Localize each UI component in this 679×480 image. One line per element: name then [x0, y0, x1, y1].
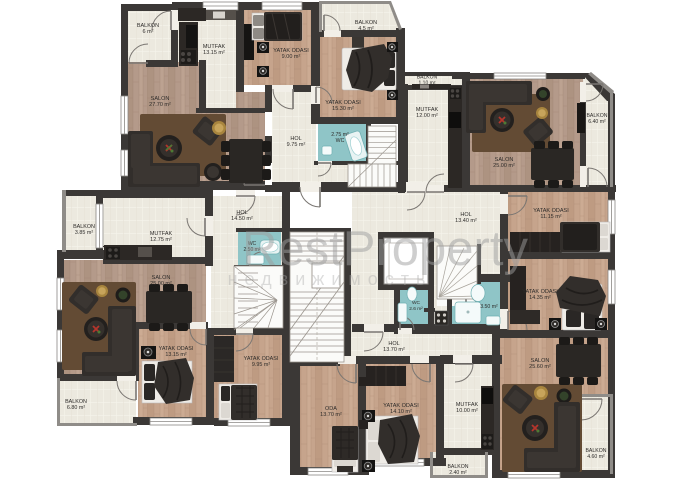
svg-text:14.10 m²: 14.10 m² [390, 409, 412, 415]
svg-text:3.50 m²: 3.50 m² [480, 304, 498, 310]
svg-text:BALKON: BALKON [355, 20, 377, 26]
svg-text:BALKON: BALKON [417, 75, 438, 81]
svg-text:4.60 m²: 4.60 m² [587, 454, 605, 460]
svg-text:27.70 m²: 27.70 m² [149, 102, 171, 108]
svg-text:13.70 m²: 13.70 m² [383, 347, 405, 353]
svg-text:6.80 m²: 6.80 m² [67, 405, 85, 411]
svg-text:BALKON: BALKON [586, 113, 607, 119]
svg-text:RestProperty: RestProperty [242, 222, 528, 276]
svg-text:BALKON: BALKON [73, 224, 95, 230]
svg-text:SALON: SALON [151, 96, 170, 102]
svg-text:BALKON: BALKON [137, 23, 159, 29]
svg-text:SALON: SALON [531, 358, 550, 364]
svg-text:14.35 m²: 14.35 m² [529, 295, 551, 301]
svg-text:6 m²: 6 m² [143, 29, 154, 35]
svg-text:12.00 m²: 12.00 m² [416, 113, 438, 119]
svg-text:10.00 m²: 10.00 m² [456, 408, 478, 414]
svg-text:13.15 m²: 13.15 m² [203, 50, 225, 56]
svg-text:SALON: SALON [152, 275, 171, 281]
svg-text:3.85 m²: 3.85 m² [75, 230, 93, 236]
svg-text:YATAK ODASI: YATAK ODASI [325, 100, 361, 106]
svg-text:HOL: HOL [388, 341, 399, 347]
svg-text:25.00 m²: 25.00 m² [493, 163, 515, 169]
svg-text:9.00 m²: 9.00 m² [282, 54, 301, 60]
svg-text:MUTFAK: MUTFAK [416, 107, 439, 113]
svg-text:25.60 m²: 25.60 m² [529, 364, 551, 370]
svg-text:BALKON: BALKON [65, 399, 87, 405]
svg-text:9.95 m²: 9.95 m² [252, 362, 270, 368]
svg-text:недвижимость: недвижимость [228, 269, 433, 289]
svg-text:YATAK ODASI: YATAK ODASI [159, 346, 194, 352]
svg-text:YATAK ODASI: YATAK ODASI [522, 289, 558, 295]
svg-text:11.15 m²: 11.15 m² [540, 214, 561, 220]
svg-text:WC: WC [412, 300, 421, 306]
svg-text:1.10 m²: 1.10 m² [419, 81, 436, 87]
svg-text:ODA: ODA [325, 406, 337, 412]
svg-text:MUTFAK: MUTFAK [203, 44, 226, 50]
svg-text:BALKON: BALKON [585, 448, 606, 454]
svg-text:2.6 m²: 2.6 m² [409, 306, 423, 312]
svg-text:YATAK ODASI: YATAK ODASI [383, 403, 419, 409]
svg-text:15.30 m²: 15.30 m² [332, 106, 354, 112]
svg-text:9.75 m²: 9.75 m² [287, 142, 306, 148]
svg-text:25.00 m²: 25.00 m² [150, 281, 172, 287]
svg-text:HOL: HOL [236, 210, 247, 216]
svg-text:13.15 m²: 13.15 m² [165, 352, 186, 358]
svg-text:MUTFAK: MUTFAK [456, 402, 479, 408]
svg-text:WC: WC [336, 138, 345, 144]
svg-text:6.40 m²: 6.40 m² [588, 119, 606, 125]
svg-text:HOL: HOL [290, 136, 301, 142]
svg-text:YATAK ODASI: YATAK ODASI [244, 356, 279, 362]
svg-text:BALKON: BALKON [447, 464, 468, 470]
svg-text:2.40 m²: 2.40 m² [449, 470, 467, 476]
svg-text:12.75 m²: 12.75 m² [150, 237, 172, 243]
svg-text:SALON: SALON [495, 157, 514, 163]
svg-text:4.5 m²: 4.5 m² [358, 26, 374, 32]
svg-text:YATAK ODASI: YATAK ODASI [273, 48, 309, 54]
svg-text:2.75 m²: 2.75 m² [331, 132, 349, 138]
svg-text:HOL: HOL [460, 212, 471, 218]
svg-text:13.70 m²: 13.70 m² [320, 412, 342, 418]
svg-text:YATAK ODASI: YATAK ODASI [533, 208, 569, 214]
svg-text:MUTFAK: MUTFAK [150, 231, 173, 237]
